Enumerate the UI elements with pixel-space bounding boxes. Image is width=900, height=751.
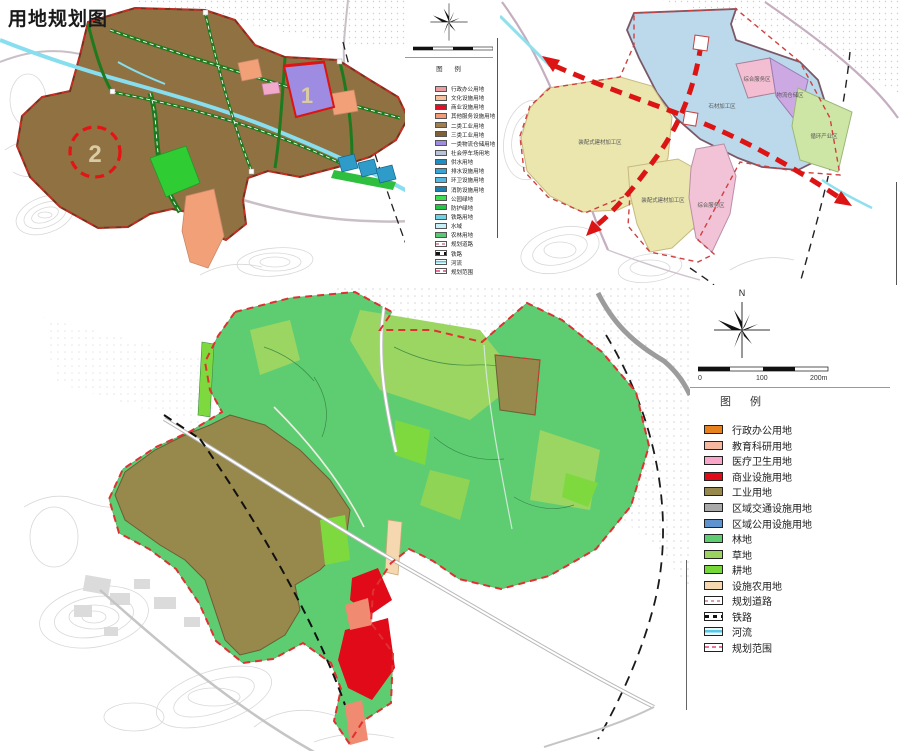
legend-swatch — [435, 131, 447, 137]
legend-item: 区域交通设施用地 — [690, 500, 900, 516]
legend-item: 设施农用地 — [690, 577, 900, 593]
legend-swatch — [435, 168, 447, 174]
scale-label: 0 — [698, 375, 702, 382]
industrial-patch — [495, 355, 540, 415]
legend-top-left: 图 例 行政办公用地 文化设施用地 商业设施用地 其他服务设施用地 二类工业用地… — [405, 0, 497, 285]
legend-items: 行政办公用地 文化设施用地 商业设施用地 其他服务设施用地 二类工业用地 三类工… — [405, 84, 497, 276]
legend-item: 一类物流仓储用地 — [405, 139, 497, 148]
zone-prefab-materials-2 — [628, 159, 698, 252]
legend-item-label: 耕地 — [732, 562, 752, 577]
legend-swatch — [704, 425, 723, 434]
legend-item: 防护绿地 — [405, 203, 497, 212]
legend-swatch — [435, 86, 447, 92]
legend-item: 消防设施用地 — [405, 185, 497, 194]
marker-2: 2 — [88, 141, 101, 168]
legend-item: 区域公用设施用地 — [690, 515, 900, 531]
legend-swatch — [435, 232, 447, 238]
legend-swatch — [704, 487, 723, 496]
legend-swatch — [435, 223, 447, 229]
legend-item: 河流 — [690, 624, 900, 640]
parcel-pink — [262, 82, 280, 95]
legend-swatch — [435, 195, 447, 201]
legend-item: 林地 — [690, 531, 900, 547]
grass-in-industrial — [320, 515, 350, 565]
legend-item-label: 河流 — [732, 624, 752, 639]
legend-item-label: 商业设施用地 — [732, 469, 792, 484]
legend-swatch — [435, 150, 447, 156]
zone-label: 物流仓储区 — [777, 91, 805, 99]
legend-item-label: 公园绿地 — [451, 194, 473, 202]
legend-item: 规划道路 — [405, 239, 497, 248]
parcel-salmon — [238, 59, 262, 81]
legend-item-label: 工业用地 — [732, 484, 772, 499]
legend-item: 行政办公用地 — [690, 422, 900, 438]
legend-swatch — [435, 140, 447, 146]
map-top-right: 石材加工区 装配式建材加工区 装配式建材加工区 综合服务区 物流仓储区 循环产业… — [500, 0, 900, 285]
legend-swatch — [704, 441, 723, 450]
river-swatch — [704, 627, 723, 636]
legend-item-label: 规划道路 — [732, 593, 772, 608]
legend-item: 耕地 — [690, 562, 900, 578]
zone-label: 石材加工区 — [709, 102, 737, 110]
legend-item: 规划范围 — [405, 267, 497, 276]
legend-swatch — [704, 503, 723, 512]
zone-label: 综合服务区 — [698, 201, 726, 209]
legend-item: 商业设施用地 — [405, 102, 497, 111]
compass-rose — [712, 299, 772, 361]
legend-item: 商业设施用地 — [690, 469, 900, 485]
legend-swatch — [435, 113, 447, 119]
legend-item-label: 环卫设施用地 — [451, 176, 484, 184]
zone-label: 综合服务区 — [744, 75, 772, 83]
legend-item-label: 规划范围 — [451, 267, 473, 275]
legend-item: 排水设施用地 — [405, 166, 497, 175]
zone-service-bottom — [689, 144, 736, 252]
legend-item-label: 一类物流仓储用地 — [451, 139, 495, 147]
legend-item: 供水用地 — [405, 157, 497, 166]
legend-divider — [405, 57, 493, 58]
legend-item-label: 河流 — [451, 258, 462, 266]
scale-bar: 0 100 200m — [698, 361, 830, 383]
legend-bottom: N 0 100 200m 图 例 行政办公用地 教育科研用地 医疗卫生用地 商业… — [690, 287, 900, 751]
legend-item: 文化设施用地 — [405, 93, 497, 102]
legend-item: 铁路 — [405, 249, 497, 258]
parcel-salmon — [330, 90, 358, 115]
legend-item: 铁路用地 — [405, 212, 497, 221]
legend-item-label: 消防设施用地 — [451, 185, 484, 193]
legend-swatch — [704, 519, 723, 528]
farm-facility-strip — [385, 520, 402, 575]
legend-item: 行政办公用地 — [405, 84, 497, 93]
legend-item: 河流 — [405, 258, 497, 267]
page-title: 用地规划图 — [8, 4, 108, 31]
legend-item-label: 草地 — [732, 547, 752, 562]
marker-1: 1 — [301, 83, 313, 108]
legend-swatch — [704, 565, 723, 574]
legend-swatch — [704, 456, 723, 465]
legend-item: 公园绿地 — [405, 194, 497, 203]
legend-item-label: 区域交通设施用地 — [732, 500, 812, 515]
village-blocks — [74, 575, 200, 636]
legend-title: 图 例 — [690, 389, 900, 409]
legend-item-label: 铁路用地 — [451, 212, 473, 220]
legend-item: 社会停车场用地 — [405, 148, 497, 157]
legend-item-label: 农林用地 — [451, 231, 473, 239]
legend-item: 水域 — [405, 221, 497, 230]
zone-label: 循环产业区 — [811, 132, 839, 140]
river-swatch — [435, 259, 447, 265]
scale-label: 200m — [810, 375, 828, 382]
legend-item-label: 行政办公用地 — [451, 84, 484, 92]
legend-item: 教育科研用地 — [690, 438, 900, 454]
legend-swatch — [704, 550, 723, 559]
legend-item-label: 水域 — [451, 222, 462, 230]
legend-swatch — [704, 534, 723, 543]
legend-swatch — [704, 581, 723, 590]
planning-figure: 用地规划图 — [0, 0, 900, 751]
legend-item-label: 林地 — [732, 531, 752, 546]
zone-label: 装配式建材加工区 — [578, 138, 622, 146]
boundary-swatch — [704, 643, 723, 652]
legend-item-label: 排水设施用地 — [451, 167, 484, 175]
panel-divider — [497, 38, 498, 238]
legend-item-label: 规划道路 — [451, 240, 473, 248]
railway-swatch — [435, 250, 447, 256]
planned-road-swatch — [435, 241, 447, 247]
railway-swatch — [704, 612, 723, 621]
legend-edge-line — [686, 560, 687, 710]
legend-swatch — [435, 95, 447, 101]
legend-item: 农林用地 — [405, 230, 497, 239]
map-bottom — [14, 287, 690, 751]
legend-swatch — [435, 214, 447, 220]
legend-item-label: 医疗卫生用地 — [732, 453, 792, 468]
legend-item-label: 供水用地 — [451, 158, 473, 166]
compass-rose — [423, 2, 475, 42]
legend-item: 三类工业用地 — [405, 130, 497, 139]
legend-swatch — [435, 122, 447, 128]
legend-item: 草地 — [690, 546, 900, 562]
legend-swatch — [435, 159, 447, 165]
legend-item-label: 行政办公用地 — [732, 422, 792, 437]
legend-item: 铁路 — [690, 609, 900, 625]
legend-title: 图 例 — [405, 60, 497, 73]
legend-items: 行政办公用地 教育科研用地 医疗卫生用地 商业设施用地 工业用地 区域交通设施用… — [690, 422, 900, 655]
legend-swatch — [435, 104, 447, 110]
legend-item: 环卫设施用地 — [405, 175, 497, 184]
legend-item-label: 三类工业用地 — [451, 130, 484, 138]
legend-item-label: 铁路 — [451, 249, 462, 257]
legend-item-label: 设施农用地 — [732, 578, 782, 593]
legend-item: 工业用地 — [690, 484, 900, 500]
legend-item-label: 教育科研用地 — [732, 438, 792, 453]
legend-item: 其他服务设施用地 — [405, 111, 497, 120]
legend-item-label: 其他服务设施用地 — [451, 112, 495, 120]
legend-item: 医疗卫生用地 — [690, 453, 900, 469]
legend-item-label: 文化设施用地 — [451, 94, 484, 102]
legend-item-label: 区域公用设施用地 — [732, 516, 812, 531]
legend-item-label: 防护绿地 — [451, 203, 473, 211]
legend-item-label: 规划范围 — [732, 640, 772, 655]
legend-swatch — [435, 177, 447, 183]
legend-item: 规划范围 — [690, 640, 900, 656]
legend-item-label: 二类工业用地 — [451, 121, 484, 129]
scale-label: 100 — [756, 375, 768, 382]
scale-bar — [413, 43, 493, 55]
panel-edge-line — [896, 182, 897, 285]
legend-item: 二类工业用地 — [405, 121, 497, 130]
planned-road-swatch — [704, 596, 723, 605]
compass-north-label: N — [712, 288, 772, 298]
legend-item-label: 社会停车场用地 — [451, 148, 490, 156]
boundary-swatch — [435, 268, 447, 274]
legend-swatch — [704, 472, 723, 481]
legend-divider — [690, 387, 890, 388]
legend-item: 规划道路 — [690, 593, 900, 609]
legend-swatch — [435, 204, 447, 210]
legend-item-label: 铁路 — [732, 609, 752, 624]
legend-swatch — [435, 186, 447, 192]
zone-label: 装配式建材加工区 — [641, 196, 685, 204]
legend-item-label: 商业设施用地 — [451, 103, 484, 111]
